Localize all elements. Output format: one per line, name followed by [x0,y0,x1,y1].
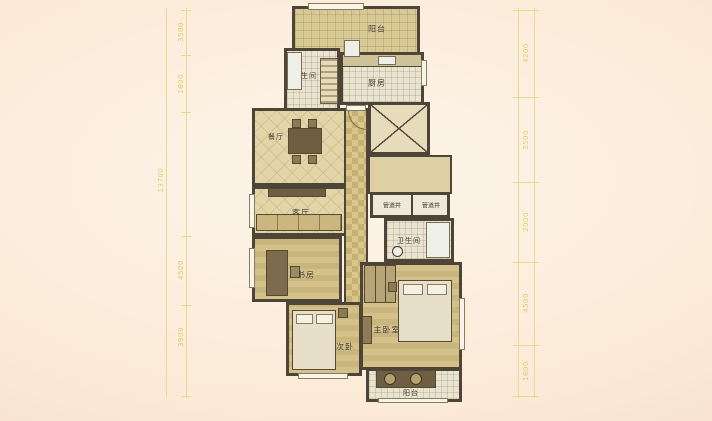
dimension-tick [513,10,539,11]
dimension-annotations: 3500 1800 4500 3900 13700 4200 3500 2000… [0,0,712,421]
dimension-tick [181,305,191,306]
dimension-line [186,8,187,398]
dimension-value-overall: 13700 [157,168,165,193]
dimension-value: 4500 [522,293,530,313]
dimension-value: 4500 [177,260,185,280]
dimension-tick [513,97,539,98]
dimension-tick [513,396,539,397]
dimension-value: 4200 [522,43,530,63]
dimension-tick [513,182,539,183]
dimension-value: 3500 [522,130,530,150]
dimension-line [518,8,519,398]
dimension-tick [181,55,191,56]
floorplan-photo: 阳台 卫生间 厨房 餐厅 客厅 [0,0,712,421]
dimension-tick [181,112,191,113]
dimension-line [166,8,167,398]
dimension-value: 3900 [177,327,185,347]
dimension-tick [181,396,191,397]
dimension-tick [181,236,191,237]
dimension-value: 1800 [177,74,185,94]
dimension-value: 1800 [522,361,530,381]
dimension-tick [181,10,191,11]
dimension-tick [513,262,539,263]
dimension-line [534,8,535,398]
dimension-tick [513,345,539,346]
dimension-value: 2000 [522,212,530,232]
dimension-value: 3500 [177,22,185,42]
